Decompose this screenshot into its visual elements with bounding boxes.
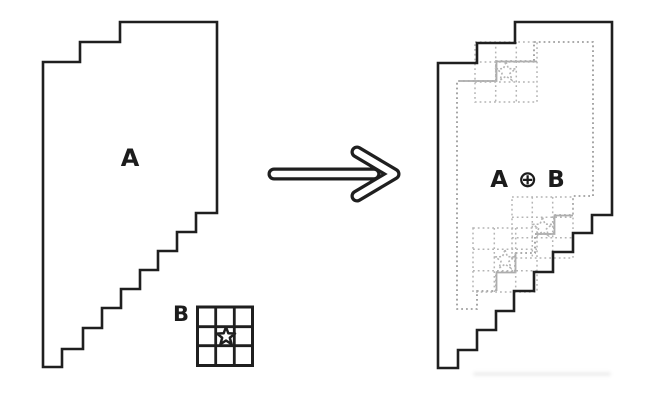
structuring-element-b-grid (198, 307, 253, 366)
se-origin-star-icon (496, 62, 515, 80)
dilation-diagram: A B A ⊕ B (0, 0, 660, 405)
b-origin-star-icon (217, 327, 235, 344)
se-overlay-grid-top (475, 42, 537, 102)
result-outline (438, 22, 612, 368)
diagram-drawing (0, 0, 660, 405)
label-result-a-dilate-b: A ⊕ B (486, 169, 570, 192)
rightward-arrow-icon (274, 152, 394, 196)
label-shape-a: A (116, 146, 144, 170)
se-origin-star-icon (533, 218, 552, 236)
label-structuring-element-b: B (170, 304, 192, 325)
faint-artifact-line (473, 372, 611, 376)
